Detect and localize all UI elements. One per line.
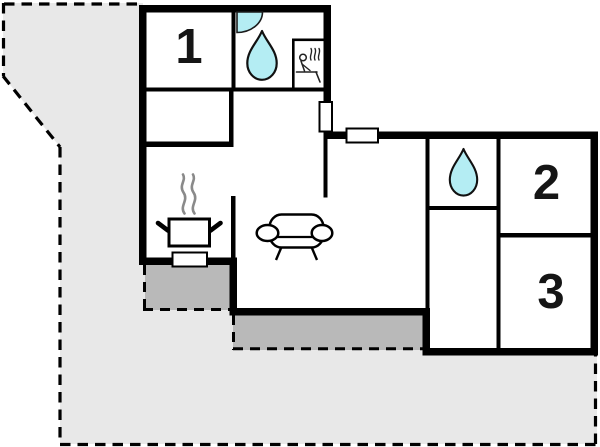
- wall-bathroom-south: [146, 88, 327, 92]
- wall-room2-room3-divider: [497, 233, 599, 238]
- sofa-armrest-right: [312, 225, 333, 241]
- sofa-armrest-left: [257, 225, 279, 241]
- window-icon-east-wall: [320, 102, 333, 132]
- terrace-kitchen: [145, 265, 233, 310]
- floor-plan-canvas: 1 2 3: [0, 0, 600, 447]
- wall-closet-east: [229, 88, 234, 148]
- wall-wing-south: [423, 348, 599, 356]
- wall-living-wing-partial: [324, 139, 328, 198]
- wall-bathroom2-south: [426, 206, 501, 210]
- window-icon-wing-north: [347, 129, 379, 143]
- wall-west: [139, 5, 147, 265]
- terrace-living: [233, 315, 427, 350]
- wall-corridor-west-thick: [423, 308, 431, 356]
- wall-kitchen-living-divider: [231, 196, 236, 258]
- room-label-3: 3: [537, 265, 564, 319]
- pot-body: [169, 219, 210, 246]
- wall-wing-east: [591, 132, 599, 356]
- wall-top-block-north: [139, 5, 331, 13]
- wall-sauna-west: [292, 41, 295, 88]
- wall-corridor-rooms-divider: [497, 139, 501, 348]
- window-icon-kitchen-south: [173, 253, 208, 267]
- wall-wing-west-thin: [426, 139, 430, 308]
- wall-living-south: [230, 308, 431, 316]
- room-label-2: 2: [533, 156, 560, 210]
- wall-room1-bathroom-divider: [232, 12, 236, 92]
- wall-sauna-north: [292, 39, 325, 42]
- wall-closet-south: [146, 142, 234, 148]
- room-label-1: 1: [175, 20, 202, 74]
- floor-plan: 1 2 3: [0, 0, 600, 447]
- wall-step-vertical: [230, 258, 238, 316]
- plot-area-left: [3, 3, 143, 444]
